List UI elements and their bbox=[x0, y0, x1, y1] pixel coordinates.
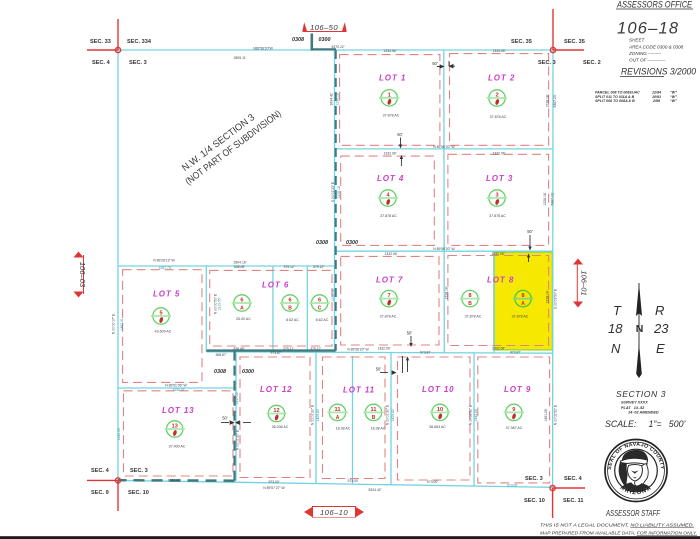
svg-text:6: 6 bbox=[288, 298, 291, 304]
svg-text:379.17’: 379.17’ bbox=[283, 347, 294, 351]
svg-text:0300: 0300 bbox=[242, 369, 254, 375]
svg-text:LOT 5: LOT 5 bbox=[153, 290, 180, 299]
svg-text:23: 23 bbox=[653, 321, 669, 336]
svg-text:1228.18’: 1228.18’ bbox=[331, 288, 335, 301]
svg-text:S 00’02’23” E: S 00’02’23” E bbox=[331, 181, 335, 202]
svg-text:37.878 AC: 37.878 AC bbox=[512, 314, 529, 318]
svg-text:1332.06’: 1332.06’ bbox=[377, 346, 390, 350]
svg-text:1482.41’: 1482.41’ bbox=[120, 317, 124, 330]
svg-text:0308: 0308 bbox=[214, 369, 226, 375]
svg-text:N 00’01’30” E: N 00’01’30” E bbox=[235, 429, 239, 450]
svg-text:18.38 AC: 18.38 AC bbox=[371, 427, 386, 431]
svg-text:SEC. 3: SEC. 3 bbox=[130, 468, 148, 474]
svg-text:11: 11 bbox=[371, 407, 377, 413]
svg-text:LOT 7: LOT 7 bbox=[376, 276, 403, 285]
svg-text:SEC. 4: SEC. 4 bbox=[91, 468, 110, 474]
svg-text:50’: 50’ bbox=[432, 61, 438, 66]
svg-text:9: 9 bbox=[512, 407, 515, 413]
svg-text:LOT 4: LOT 4 bbox=[377, 174, 404, 183]
svg-text:SEC. 4: SEC. 4 bbox=[92, 60, 111, 66]
svg-text:3: 3 bbox=[495, 193, 498, 199]
svg-text:8.62 AC: 8.62 AC bbox=[316, 318, 329, 322]
svg-text:SEC. 35: SEC. 35 bbox=[564, 39, 585, 45]
svg-text:THIS IS NOT A LEGAL DOCUMENT,: THIS IS NOT A LEGAL DOCUMENT, NO LIABILI… bbox=[540, 523, 694, 529]
svg-text:A: A bbox=[240, 306, 244, 312]
svg-text:N 89’58’20” W: N 89’58’20” W bbox=[433, 247, 455, 251]
svg-text:N 00’01’30” E: N 00’01’30” E bbox=[385, 404, 389, 425]
svg-text:1451.26’: 1451.26’ bbox=[544, 408, 548, 421]
svg-text:C: C bbox=[318, 306, 322, 312]
svg-text:B: B bbox=[372, 415, 376, 421]
svg-text:SEC. 3: SEC. 3 bbox=[538, 60, 556, 66]
svg-text:6: 6 bbox=[318, 298, 321, 304]
svg-text:LOT 1: LOT 1 bbox=[379, 74, 406, 83]
svg-text:SEC. 334: SEC. 334 bbox=[127, 39, 152, 45]
svg-text:1332.06’: 1332.06’ bbox=[492, 152, 505, 156]
svg-text:973.87’: 973.87’ bbox=[420, 350, 431, 354]
svg-text:1332.06’: 1332.06’ bbox=[492, 346, 505, 350]
svg-text:1434.31’: 1434.31’ bbox=[172, 388, 185, 392]
svg-text:37.878 AC: 37.878 AC bbox=[465, 314, 482, 318]
svg-text:38.206 AC: 38.206 AC bbox=[272, 425, 289, 429]
svg-text:N 00’00’17” E: N 00’00’17” E bbox=[112, 313, 116, 334]
svg-text:0308: 0308 bbox=[316, 240, 328, 246]
svg-text:37.878 AC: 37.878 AC bbox=[383, 114, 400, 118]
svg-text:1429.82’: 1429.82’ bbox=[391, 408, 395, 421]
svg-text:SEC. 3: SEC. 3 bbox=[525, 476, 543, 482]
svg-text:379.17’: 379.17’ bbox=[310, 347, 321, 351]
svg-text:1143.35’: 1143.35’ bbox=[117, 427, 121, 440]
svg-text:50’: 50’ bbox=[376, 366, 382, 371]
svg-text:E: E bbox=[656, 341, 665, 356]
svg-text:SEC. 33: SEC. 33 bbox=[90, 39, 111, 45]
svg-text:973.87’: 973.87’ bbox=[270, 351, 281, 355]
svg-text:37.387 AC: 37.387 AC bbox=[506, 426, 523, 430]
svg-text:25.00 AC: 25.00 AC bbox=[236, 317, 251, 321]
svg-text:ZONING –––––: ZONING ––––– bbox=[628, 51, 661, 56]
svg-text:N 89’28’13” W: N 89’28’13” W bbox=[153, 259, 175, 263]
svg-text:973.00’: 973.00’ bbox=[507, 483, 518, 487]
svg-text:5: 5 bbox=[159, 311, 162, 317]
svg-text:1319.55’: 1319.55’ bbox=[217, 297, 221, 310]
svg-text:1228.18’: 1228.18’ bbox=[445, 286, 449, 299]
svg-text:973.87’: 973.87’ bbox=[510, 350, 521, 354]
svg-text:37.878 AC: 37.878 AC bbox=[489, 214, 506, 218]
svg-text:N: N bbox=[636, 323, 644, 335]
svg-text:ASSESSORS OFFICE: ASSESSORS OFFICE bbox=[616, 0, 692, 9]
svg-text:6: 6 bbox=[240, 298, 243, 304]
svg-text:0300: 0300 bbox=[319, 37, 331, 43]
svg-text:1228.18’: 1228.18’ bbox=[546, 94, 550, 107]
svg-text:50’: 50’ bbox=[222, 416, 228, 421]
svg-text:13: 13 bbox=[172, 424, 178, 430]
svg-text:14–02 AMENDED: 14–02 AMENDED bbox=[628, 411, 659, 415]
svg-text:PLAT 13–52: PLAT 13–52 bbox=[621, 406, 645, 410]
svg-text:LOT 3: LOT 3 bbox=[486, 174, 513, 183]
svg-text:N: N bbox=[611, 341, 621, 356]
svg-text:8.62 AC: 8.62 AC bbox=[286, 318, 299, 322]
svg-text:43.609 AC: 43.609 AC bbox=[155, 330, 172, 334]
svg-text:MAP PREPARED FROM AVAILABLE DA: MAP PREPARED FROM AVAILABLE DATA, FOR IN… bbox=[540, 531, 697, 537]
svg-text:N 89’58’20” W: N 89’58’20” W bbox=[347, 347, 369, 351]
svg-text:2634.42’: 2634.42’ bbox=[329, 92, 333, 105]
svg-text:SEC. 2: SEC. 2 bbox=[583, 60, 601, 66]
svg-text:37.878 AC: 37.878 AC bbox=[380, 214, 397, 218]
svg-text:LOT 2: LOT 2 bbox=[488, 74, 515, 83]
svg-text:1332.06’: 1332.06’ bbox=[384, 252, 397, 256]
svg-text:SHEET: SHEET bbox=[629, 38, 646, 43]
svg-text:5367.23’: 5367.23’ bbox=[550, 192, 554, 205]
svg-text:REVISIONS 3/2000: REVISIONS 3/2000 bbox=[621, 67, 697, 77]
svg-text:ASSESSOR STAFF: ASSESSOR STAFF bbox=[605, 509, 661, 518]
svg-text:2: 2 bbox=[495, 93, 498, 99]
svg-text:106–50: 106–50 bbox=[310, 23, 338, 32]
svg-text:SEC. 3: SEC. 3 bbox=[129, 60, 147, 66]
svg-text:SURVEY XXXX: SURVEY XXXX bbox=[621, 400, 648, 404]
svg-text:N 00’02’52” E: N 00’02’52” E bbox=[468, 404, 472, 425]
svg-text:1239.18’: 1239.18’ bbox=[335, 92, 339, 105]
svg-text:0308: 0308 bbox=[292, 37, 304, 43]
svg-text:379.12’: 379.12’ bbox=[313, 265, 324, 269]
svg-text:R: R bbox=[655, 303, 664, 318]
svg-text:1333.56’: 1333.56’ bbox=[383, 49, 396, 53]
svg-text:2805.11’: 2805.11’ bbox=[234, 56, 247, 60]
svg-text:50’: 50’ bbox=[397, 132, 403, 137]
svg-text:2/99: 2/99 bbox=[652, 99, 660, 103]
svg-text:LOT 12: LOT 12 bbox=[260, 385, 293, 394]
svg-text:S 00’03’50” E: S 00’03’50” E bbox=[554, 288, 558, 309]
svg-text:1443.26’: 1443.26’ bbox=[474, 408, 478, 421]
svg-text:SCALE: 1”= 500’: SCALE: 1”= 500’ bbox=[605, 419, 686, 429]
svg-text:5367.23’: 5367.23’ bbox=[553, 94, 557, 107]
svg-text:N 89’57’27” W: N 89’57’27” W bbox=[263, 486, 285, 490]
svg-text:5324.42’: 5324.42’ bbox=[368, 488, 381, 492]
svg-text:B: B bbox=[288, 306, 292, 312]
svg-text:A: A bbox=[336, 415, 340, 421]
svg-text:106–10: 106–10 bbox=[320, 508, 348, 517]
svg-text:1429.82’: 1429.82’ bbox=[316, 408, 320, 421]
svg-text:10: 10 bbox=[437, 407, 443, 413]
svg-text:1317.22’: 1317.22’ bbox=[235, 391, 239, 404]
svg-text:38.663 AC: 38.663 AC bbox=[429, 425, 446, 429]
svg-text:SEC. 11: SEC. 11 bbox=[563, 498, 584, 504]
svg-text:1228.18’: 1228.18’ bbox=[337, 185, 341, 198]
svg-text:SEC. 35: SEC. 35 bbox=[511, 39, 532, 45]
svg-text:1332.06’: 1332.06’ bbox=[383, 152, 396, 156]
svg-text:“W”: “W” bbox=[670, 99, 677, 103]
svg-text:SEC. 4: SEC. 4 bbox=[564, 476, 583, 482]
svg-text:N 00’01’30” E: N 00’01’30” E bbox=[310, 404, 314, 425]
svg-text:37.878 AC: 37.878 AC bbox=[490, 115, 507, 119]
svg-text:1434.42’: 1434.42’ bbox=[167, 479, 180, 483]
svg-text:B: B bbox=[468, 301, 472, 307]
svg-text:1333.06’: 1333.06’ bbox=[492, 49, 505, 53]
svg-text:N 89’58’20” W: N 89’58’20” W bbox=[433, 145, 455, 149]
svg-text:LOT 13: LOT 13 bbox=[162, 406, 195, 415]
svg-text:8: 8 bbox=[521, 293, 524, 299]
svg-text:1228.18’: 1228.18’ bbox=[545, 290, 549, 303]
svg-text:50’: 50’ bbox=[527, 229, 533, 234]
svg-text:8: 8 bbox=[468, 293, 471, 299]
svg-text:37.400 AC: 37.400 AC bbox=[169, 444, 186, 448]
svg-text:973.00’: 973.00’ bbox=[268, 480, 279, 484]
svg-text:2804.16’: 2804.16’ bbox=[233, 260, 246, 264]
svg-text:LOT 8: LOT 8 bbox=[487, 276, 514, 285]
svg-text:12: 12 bbox=[273, 408, 279, 414]
svg-text:1067.73’: 1067.73’ bbox=[158, 266, 171, 270]
svg-text:18: 18 bbox=[608, 321, 623, 336]
svg-text:LOT 9: LOT 9 bbox=[504, 385, 531, 394]
svg-text:SPLIT 008 TO 008A & B: SPLIT 008 TO 008A & B bbox=[595, 99, 635, 103]
svg-text:SEC. 10: SEC. 10 bbox=[524, 498, 545, 504]
svg-text:LOT 11: LOT 11 bbox=[343, 386, 375, 395]
svg-text:0300: 0300 bbox=[346, 240, 358, 246]
svg-text:106–18: 106–18 bbox=[617, 20, 679, 38]
svg-text:1228.18’: 1228.18’ bbox=[543, 192, 547, 205]
svg-text:5370.22’: 5370.22’ bbox=[331, 45, 344, 49]
svg-text:SECTION 3: SECTION 3 bbox=[616, 389, 666, 399]
svg-text:379.12’: 379.12’ bbox=[283, 265, 294, 269]
svg-text:838.08’: 838.08’ bbox=[234, 265, 245, 269]
svg-text:1: 1 bbox=[388, 92, 391, 98]
svg-text:1332.06’: 1332.06’ bbox=[491, 252, 504, 256]
svg-text:838.88’: 838.88’ bbox=[233, 347, 244, 351]
svg-text:AREA CODE 0300 & 0308: AREA CODE 0300 & 0308 bbox=[628, 44, 684, 49]
svg-text:OUT OF –––––––: OUT OF ––––––– bbox=[629, 58, 666, 63]
svg-text:106–03: 106–03 bbox=[78, 262, 87, 288]
svg-text:106–01: 106–01 bbox=[580, 270, 589, 295]
svg-text:SEC. 10: SEC. 10 bbox=[128, 490, 149, 496]
svg-text:LOT 6: LOT 6 bbox=[262, 281, 289, 290]
svg-text:973.00’: 973.00’ bbox=[347, 479, 358, 483]
svg-text:LOT 10: LOT 10 bbox=[422, 385, 455, 394]
svg-text:N89’58’20”W: N89’58’20”W bbox=[253, 46, 273, 50]
svg-text:368.87’: 368.87’ bbox=[215, 353, 226, 357]
svg-text:18.38 AC: 18.38 AC bbox=[336, 427, 351, 431]
svg-text:973.00’: 973.00’ bbox=[427, 480, 438, 484]
svg-text:50’: 50’ bbox=[407, 331, 413, 336]
svg-text:11: 11 bbox=[335, 407, 341, 413]
svg-text:T: T bbox=[613, 303, 622, 318]
svg-text:SEC. 9: SEC. 9 bbox=[91, 490, 109, 496]
svg-text:A: A bbox=[521, 301, 525, 307]
svg-text:37.878 AC: 37.878 AC bbox=[380, 314, 397, 318]
svg-text:N 00’02’52” E: N 00’02’52” E bbox=[554, 404, 558, 425]
svg-text:7: 7 bbox=[387, 293, 390, 299]
